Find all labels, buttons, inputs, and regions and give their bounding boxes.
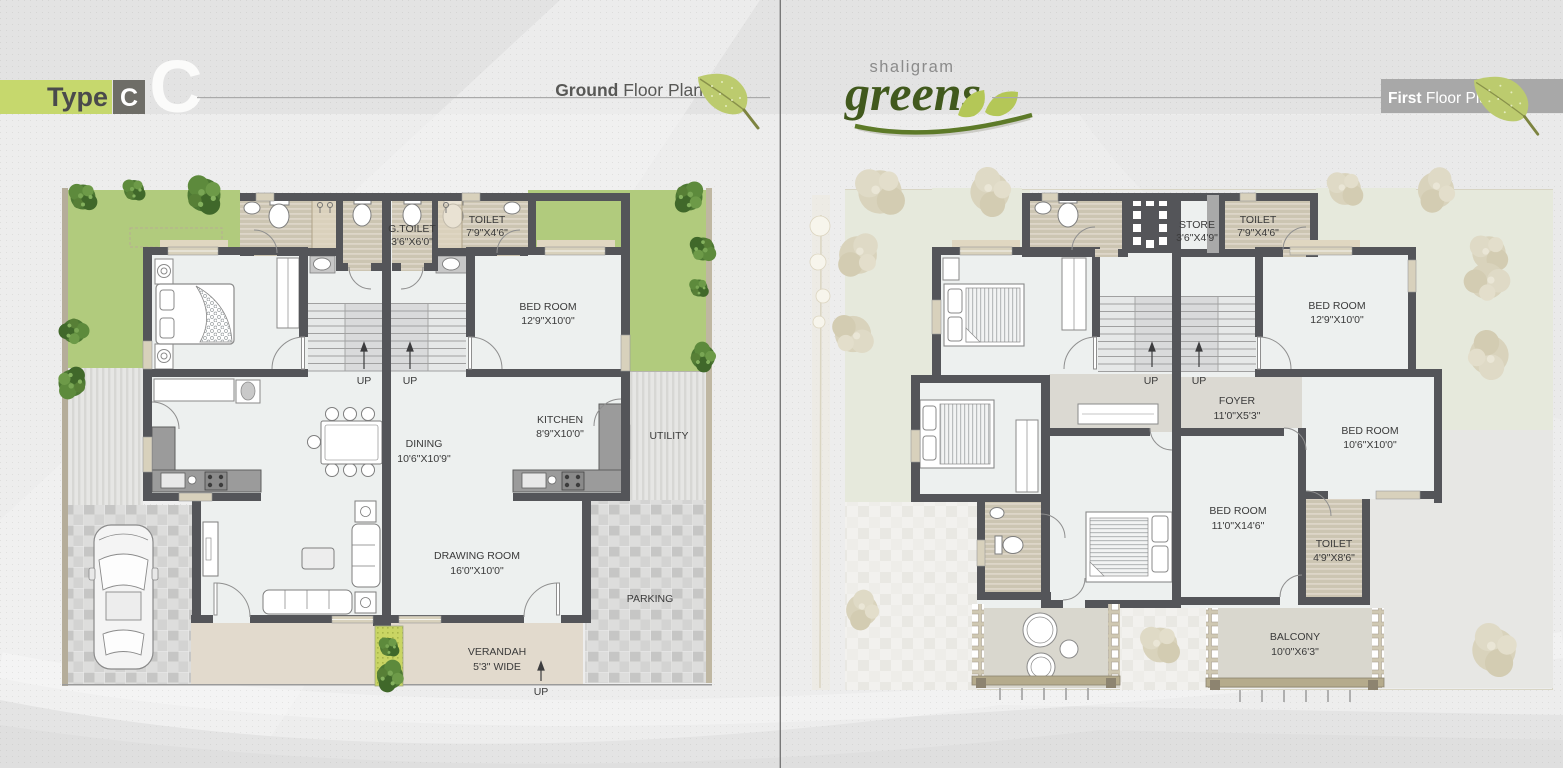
svg-text:10'0"X6'3": 10'0"X6'3" [1271,646,1319,658]
svg-text:STORE: STORE [1179,219,1215,231]
svg-text:11'0"X5'3": 11'0"X5'3" [1214,410,1261,422]
svg-text:UTILITY: UTILITY [649,430,688,442]
svg-text:3'6"X4'9": 3'6"X4'9" [1176,232,1218,244]
svg-text:5'3" WIDE: 5'3" WIDE [473,661,521,673]
svg-text:8'9"X10'0": 8'9"X10'0" [536,428,584,440]
svg-text:16'0"X10'0": 16'0"X10'0" [450,565,504,577]
svg-text:DRAWING ROOM: DRAWING ROOM [434,550,520,562]
svg-text:PARKING: PARKING [627,593,673,605]
svg-text:4'9"X8'6": 4'9"X8'6" [1313,552,1355,564]
svg-text:VERANDAH: VERANDAH [468,646,526,658]
svg-text:BED ROOM: BED ROOM [519,301,576,313]
svg-text:10'6"X10'0": 10'6"X10'0" [1343,439,1397,451]
svg-text:UP: UP [1192,375,1207,387]
svg-text:TOILET: TOILET [469,214,506,226]
svg-text:TOILET: TOILET [1240,214,1277,226]
svg-text:UP: UP [357,375,372,387]
svg-text:BALCONY: BALCONY [1270,631,1320,643]
svg-text:BED ROOM: BED ROOM [1209,505,1266,517]
svg-text:G.TOILET: G.TOILET [388,223,436,235]
svg-text:Type: Type [47,82,108,112]
svg-text:C: C [120,84,138,112]
svg-text:12'9"X10'0": 12'9"X10'0" [521,315,575,327]
svg-text:7'9"X4'6": 7'9"X4'6" [1237,227,1279,239]
svg-text:Ground Floor Plan: Ground Floor Plan [555,80,703,100]
svg-text:UP: UP [1144,375,1159,387]
svg-text:UP: UP [534,686,549,698]
svg-text:7'9"X4'6": 7'9"X4'6" [466,227,508,239]
svg-text:10'6"X10'9": 10'6"X10'9" [397,453,451,465]
svg-text:BED ROOM: BED ROOM [1308,300,1365,312]
svg-text:TOILET: TOILET [1316,538,1353,550]
svg-text:UP: UP [403,375,418,387]
svg-text:C: C [149,45,202,128]
svg-text:FOYER: FOYER [1219,395,1256,407]
svg-text:3'6"X6'0": 3'6"X6'0" [391,236,433,248]
svg-text:BED ROOM: BED ROOM [1341,425,1398,437]
svg-text:DINING: DINING [406,438,443,450]
svg-text:11'0"X14'6": 11'0"X14'6" [1212,520,1265,532]
svg-text:12'9"X10'0": 12'9"X10'0" [1310,314,1364,326]
svg-text:KITCHEN: KITCHEN [537,414,583,426]
